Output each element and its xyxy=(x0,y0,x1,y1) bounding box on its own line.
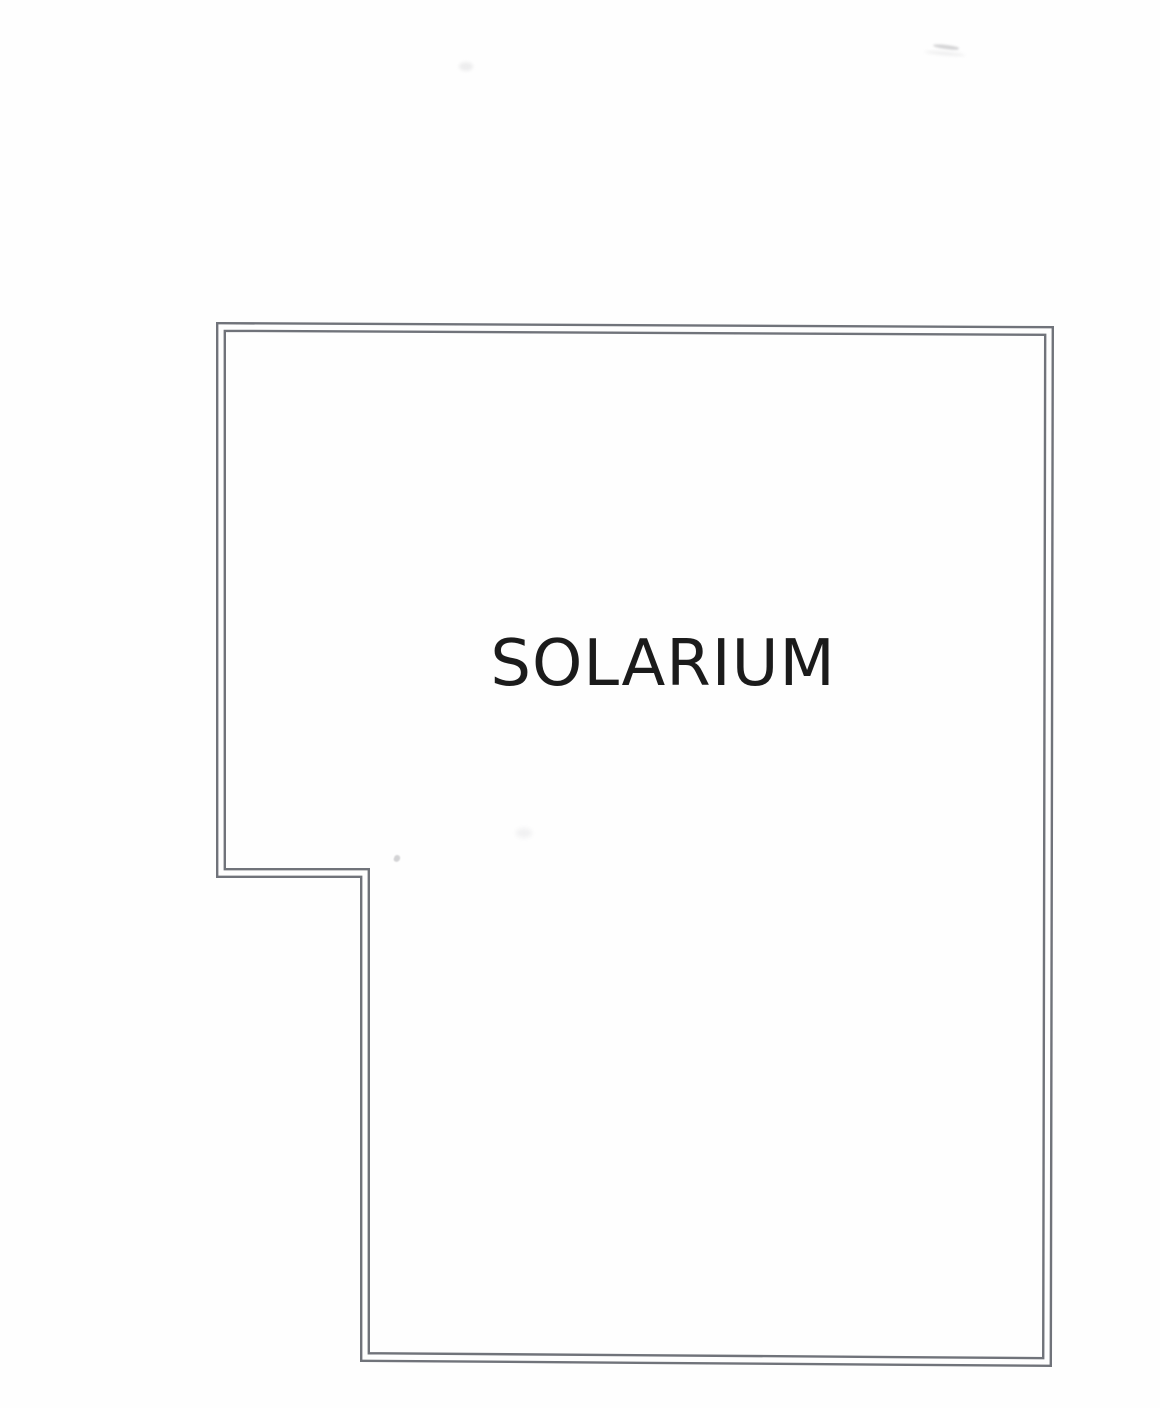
floor-plan-page: SOLARIUM xyxy=(0,0,1160,1408)
room-fill xyxy=(221,327,1049,1362)
floor-plan-svg xyxy=(0,0,1160,1408)
room-label: SOLARIUM xyxy=(490,627,835,701)
